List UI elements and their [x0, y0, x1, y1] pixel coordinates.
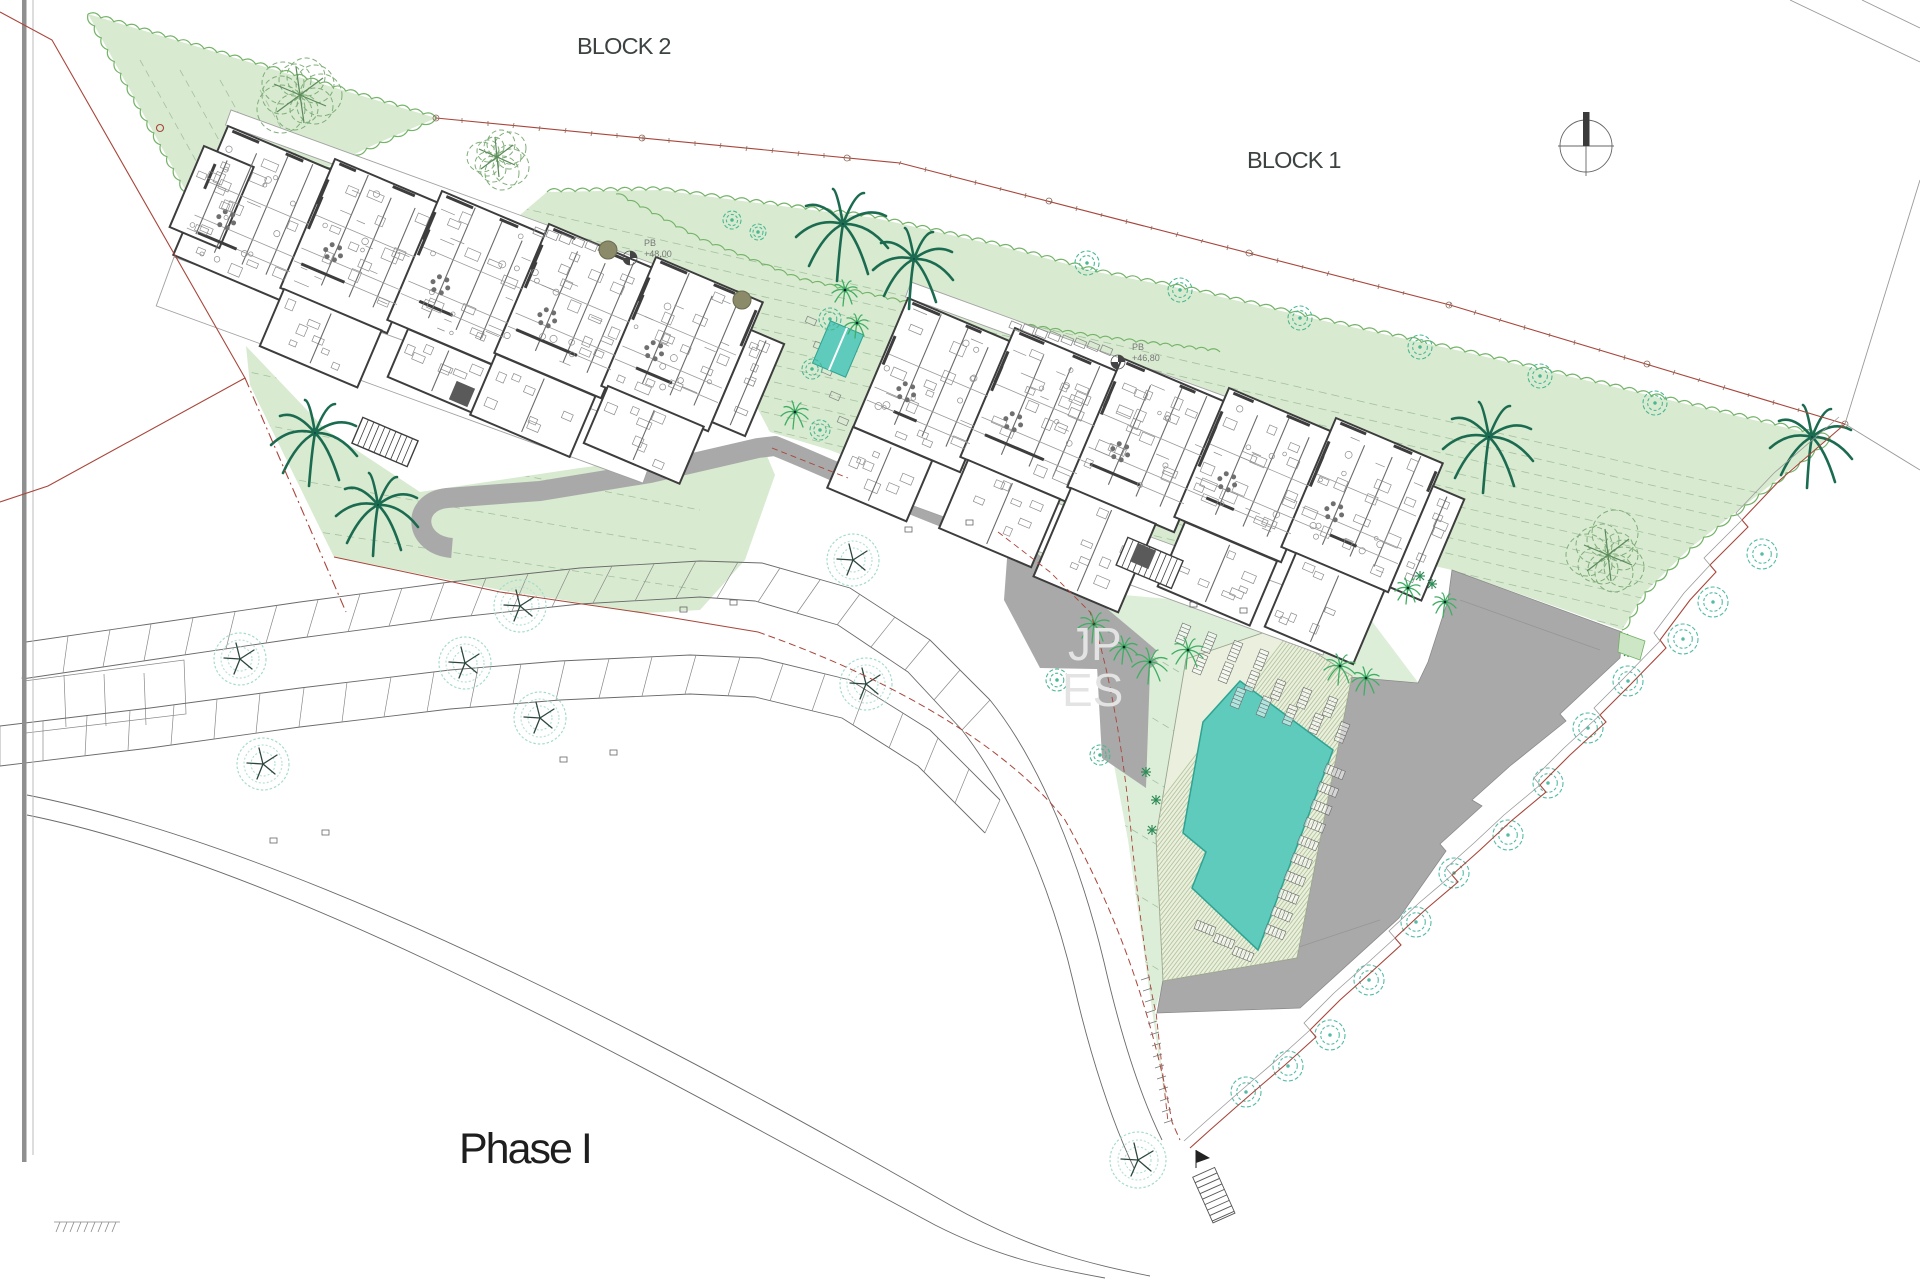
svg-text:Phase I: Phase I — [459, 1125, 591, 1173]
svg-text:BLOCK 2: BLOCK 2 — [577, 33, 671, 59]
svg-text:JP: JP — [1068, 618, 1122, 670]
svg-text:BLOCK 1: BLOCK 1 — [1247, 147, 1341, 173]
svg-text:ES: ES — [1062, 664, 1123, 716]
svg-text:PB: PB — [1132, 342, 1144, 352]
svg-text:PB: PB — [644, 238, 656, 248]
svg-text:+46,80: +46,80 — [1132, 353, 1160, 363]
svg-text:+48,00: +48,00 — [644, 249, 672, 259]
